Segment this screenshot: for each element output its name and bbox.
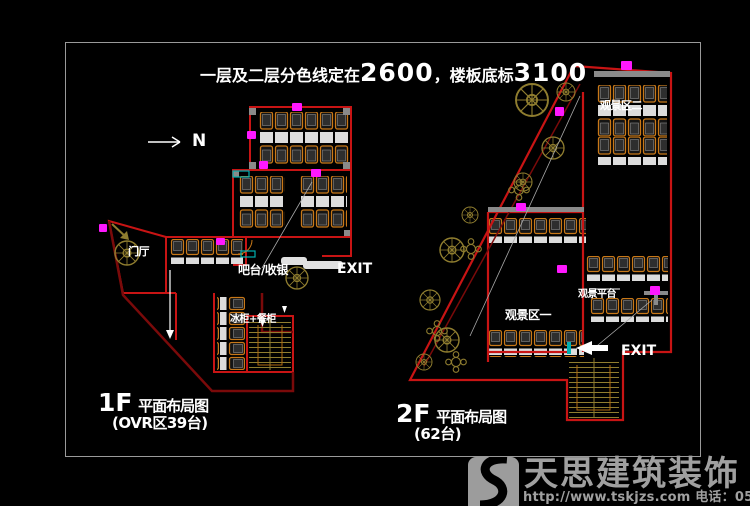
drawing-title: 一层及二层分色线定在2600，楼板底标3100	[200, 58, 587, 87]
tree-icon	[286, 267, 308, 289]
seating-row-1f-left	[170, 239, 243, 264]
stairs-1f	[249, 318, 291, 370]
north-arrow: N	[146, 131, 206, 151]
stairs-2f	[569, 358, 619, 418]
label-2f-exit: EXIT	[621, 344, 656, 358]
caption-2f-sub: (62台)	[414, 423, 461, 444]
north-arrow-icon	[146, 134, 190, 148]
cad-canvas: 一层及二层分色线定在2600，楼板底标3100 N 门厅 吧台/收银 EXIT …	[0, 0, 750, 506]
seating-block-1f-mid-left	[239, 176, 285, 228]
watermark-contact: http://www.tskjzs.com 电话：0551-65568226	[523, 486, 750, 505]
title-elevation-1: 2600	[360, 58, 434, 87]
leader-line	[470, 96, 580, 336]
seating-column-1f-bottom	[217, 296, 245, 370]
fixture-cyan	[567, 342, 571, 354]
title-elevation-2: 3100	[514, 58, 588, 87]
label-2f-area-mid: 观景区一	[505, 309, 551, 321]
label-1f-exit: EXIT	[337, 262, 372, 276]
seating-row-2f-right-upper	[586, 256, 668, 282]
caption-1f-sub: (OVR区39台)	[112, 412, 208, 433]
seating-block-1f-top	[259, 112, 349, 164]
plan-2f-drawing	[410, 61, 671, 420]
direction-arrow-icon	[166, 270, 174, 339]
seating-block-1f-mid-right	[300, 176, 347, 228]
label-2f-platform: 观景平台	[578, 290, 616, 300]
label-2f-area-top: 观景区二	[600, 100, 642, 111]
seating-block-2f-topright	[597, 85, 667, 165]
label-1f-cabinet: 冰柜+餐柜	[230, 315, 276, 325]
label-1f-entrance: 门厅	[128, 246, 149, 257]
label-1f-bar: 吧台/收银	[238, 264, 288, 276]
north-label: N	[192, 131, 206, 151]
tiansi-logo	[467, 457, 521, 506]
seating-row-2f-mid	[488, 218, 586, 244]
title-text: 一层及二层分色线定在	[200, 66, 360, 85]
title-text-2: ，楼板底标	[434, 66, 514, 85]
